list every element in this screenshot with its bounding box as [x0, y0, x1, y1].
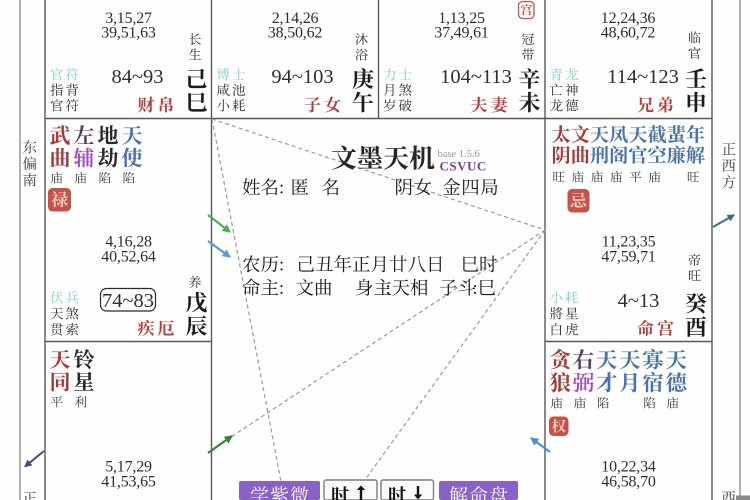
svg-text:38,50,62: 38,50,62 [268, 24, 323, 41]
svg-text:39,51,63: 39,51,63 [101, 24, 156, 41]
svg-text::: : [279, 256, 284, 276]
svg-text:46,58,70: 46,58,70 [601, 473, 656, 490]
svg-text:CSVUC: CSVUC [440, 159, 487, 174]
svg-text::: : [386, 279, 391, 299]
svg-text:41,53,65: 41,53,65 [101, 473, 156, 490]
svg-text:114~123: 114~123 [607, 66, 679, 88]
svg-text:47,59,71: 47,59,71 [601, 248, 656, 265]
svg-text:48,60,72: 48,60,72 [601, 24, 656, 41]
svg-text:104~113: 104~113 [440, 66, 512, 88]
svg-text:40,52,64: 40,52,64 [101, 248, 156, 265]
svg-text:84~93: 84~93 [111, 66, 163, 88]
svg-text::: : [473, 279, 478, 299]
svg-text:94~103: 94~103 [271, 66, 333, 88]
svg-text::: : [279, 179, 284, 199]
svg-text:74~83: 74~83 [102, 290, 154, 312]
svg-text::: : [279, 279, 284, 299]
svg-text:37,49,61: 37,49,61 [434, 24, 489, 41]
svg-text:4~13: 4~13 [618, 290, 660, 312]
